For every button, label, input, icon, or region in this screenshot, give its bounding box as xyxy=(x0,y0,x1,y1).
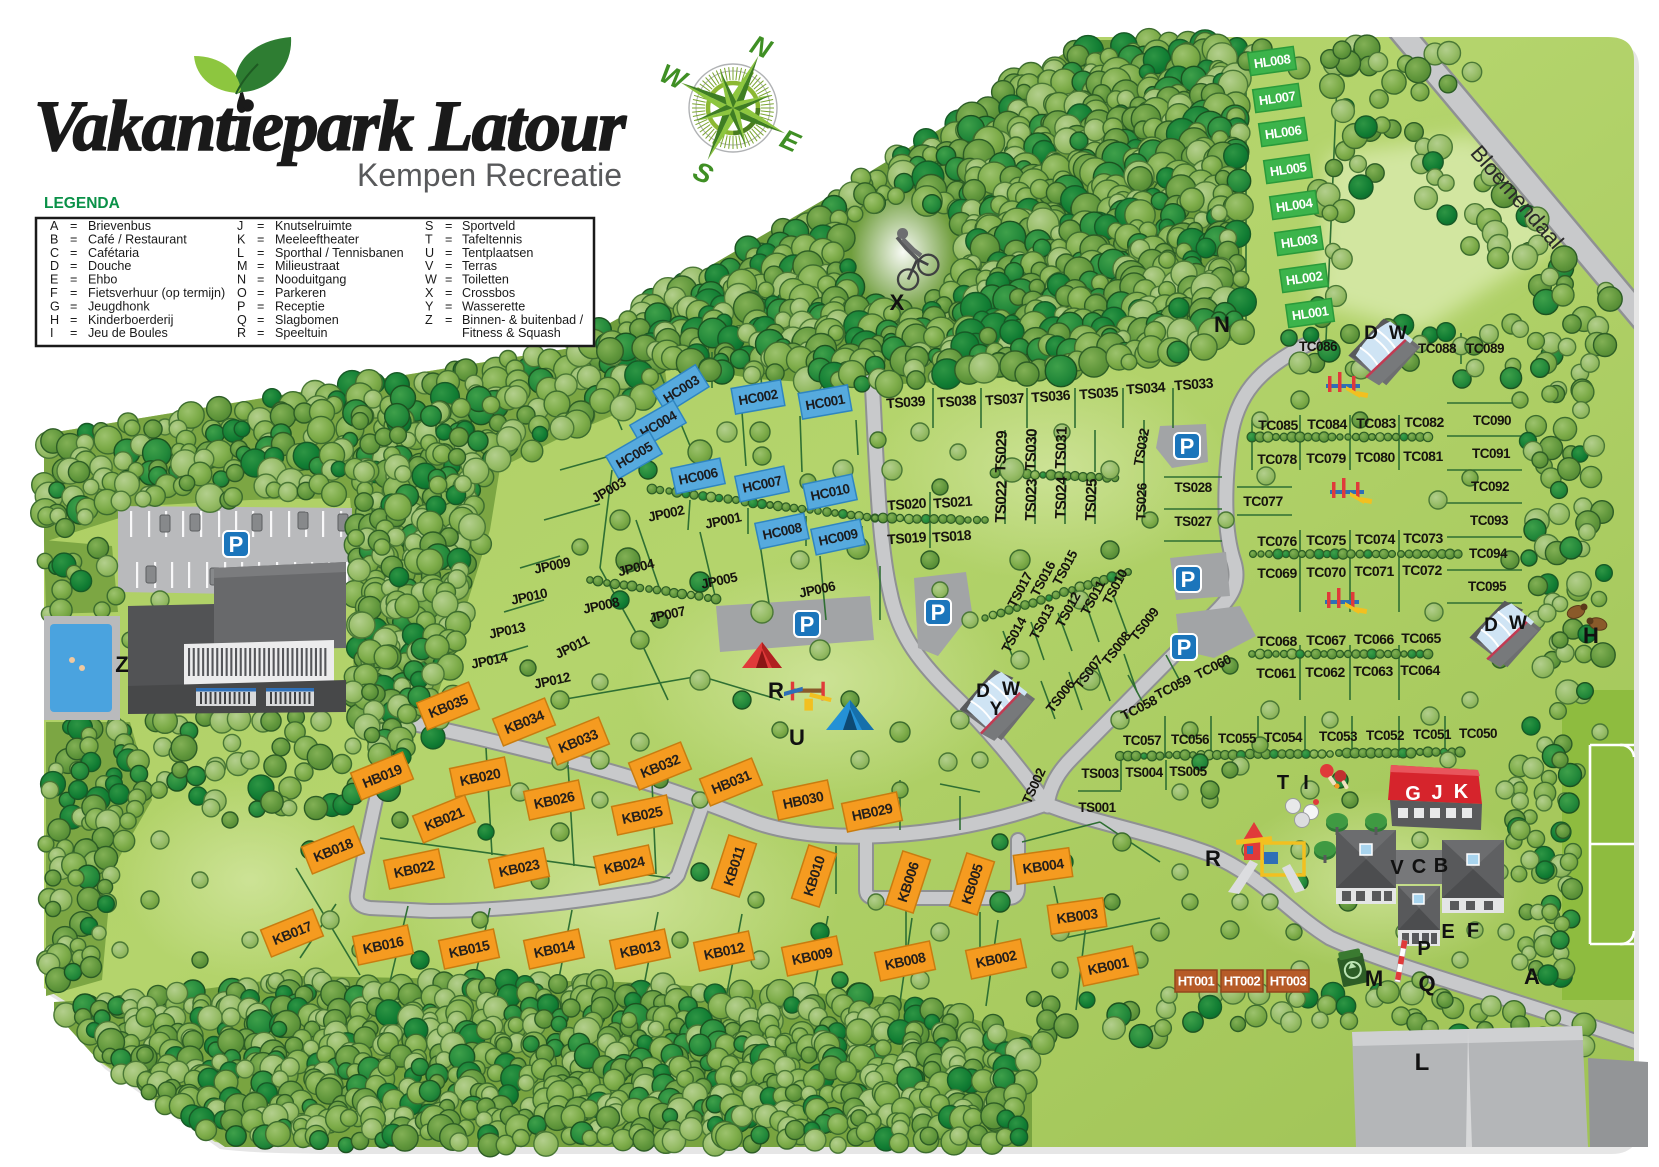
svg-text:TC052: TC052 xyxy=(1366,728,1404,743)
svg-text:TS035: TS035 xyxy=(1079,384,1119,403)
svg-text:Parkeren: Parkeren xyxy=(275,286,326,300)
svg-text:P: P xyxy=(1177,635,1192,660)
svg-text:=: = xyxy=(445,273,452,287)
svg-text:TC061: TC061 xyxy=(1256,665,1296,681)
svg-text:TS003: TS003 xyxy=(1081,766,1119,781)
svg-text:Speeltuin: Speeltuin xyxy=(275,326,328,340)
svg-text:TS039: TS039 xyxy=(886,393,926,412)
svg-text:TC063: TC063 xyxy=(1353,663,1393,679)
svg-text:=: = xyxy=(70,299,77,313)
svg-text:Tafeltennis: Tafeltennis xyxy=(462,232,522,246)
svg-text:Sporthal / Tennisbanen: Sporthal / Tennisbanen xyxy=(275,246,404,260)
svg-text:H: H xyxy=(50,313,59,327)
svg-text:TC056: TC056 xyxy=(1171,732,1210,747)
svg-text:LEGENDA: LEGENDA xyxy=(44,195,120,212)
svg-text:TS033: TS033 xyxy=(1174,375,1214,394)
svg-text:Brievenbus: Brievenbus xyxy=(88,219,151,233)
svg-text:Q: Q xyxy=(237,313,247,327)
svg-text:Toiletten: Toiletten xyxy=(462,273,509,287)
svg-text:=: = xyxy=(445,219,452,233)
svg-text:TC091: TC091 xyxy=(1472,446,1511,461)
svg-text:Sportveld: Sportveld xyxy=(462,219,515,233)
svg-text:=: = xyxy=(70,246,77,260)
svg-text:TC067: TC067 xyxy=(1306,632,1346,648)
svg-text:R: R xyxy=(237,326,246,340)
svg-text:TC092: TC092 xyxy=(1471,479,1509,494)
svg-text:M: M xyxy=(237,259,248,273)
svg-text:TC057: TC057 xyxy=(1123,733,1161,748)
svg-text:E: E xyxy=(50,273,58,287)
svg-text:P: P xyxy=(1180,434,1195,459)
svg-text:W: W xyxy=(1389,323,1407,344)
svg-text:Y: Y xyxy=(425,299,434,313)
svg-text:P: P xyxy=(800,612,815,637)
svg-text:TC072: TC072 xyxy=(1402,562,1442,578)
svg-text:TS001: TS001 xyxy=(1078,800,1116,815)
svg-text:D: D xyxy=(1484,615,1498,636)
svg-text:I: I xyxy=(50,326,54,340)
svg-text:N: N xyxy=(237,273,246,287)
svg-text:TS021: TS021 xyxy=(933,493,973,512)
svg-text:M: M xyxy=(1365,966,1383,991)
svg-text:TC074: TC074 xyxy=(1355,531,1395,547)
svg-text:TS036: TS036 xyxy=(1031,387,1071,406)
svg-text:=: = xyxy=(445,313,452,327)
svg-text:Terras: Terras xyxy=(462,259,497,273)
svg-text:=: = xyxy=(70,232,77,246)
svg-text:U: U xyxy=(425,246,434,260)
svg-text:=: = xyxy=(257,246,264,260)
svg-text:O: O xyxy=(237,286,247,300)
svg-text:Q: Q xyxy=(1418,971,1435,996)
svg-text:Douche: Douche xyxy=(88,259,131,273)
svg-text:D: D xyxy=(976,681,990,702)
svg-text:X: X xyxy=(425,286,434,300)
svg-text:=: = xyxy=(257,326,264,340)
svg-text:Fitness & Squash: Fitness & Squash xyxy=(462,326,561,340)
svg-text:TC069: TC069 xyxy=(1257,565,1297,581)
svg-text:TC094: TC094 xyxy=(1469,546,1508,561)
svg-text:B: B xyxy=(1434,855,1448,877)
svg-text:HT001: HT001 xyxy=(1178,974,1215,989)
svg-text:TS027: TS027 xyxy=(1174,514,1211,529)
svg-text:=: = xyxy=(257,259,264,273)
svg-text:C: C xyxy=(50,246,59,260)
svg-text:Nooduitgang: Nooduitgang xyxy=(275,273,346,287)
svg-text:I: I xyxy=(1303,772,1309,794)
svg-text:TS018: TS018 xyxy=(932,527,972,546)
svg-text:=: = xyxy=(445,286,452,300)
svg-text:X: X xyxy=(890,290,905,315)
svg-text:TS022: TS022 xyxy=(992,481,1010,523)
svg-text:TS031: TS031 xyxy=(1052,427,1070,469)
svg-text:TC051: TC051 xyxy=(1413,727,1452,742)
svg-text:Ehbo: Ehbo xyxy=(88,273,117,287)
svg-text:Z: Z xyxy=(425,313,433,327)
svg-text:J: J xyxy=(1431,782,1442,804)
svg-text:D: D xyxy=(50,259,59,273)
svg-text:Jeu de Boules: Jeu de Boules xyxy=(88,326,168,340)
svg-text:A: A xyxy=(50,219,59,233)
svg-text:P: P xyxy=(1417,938,1430,960)
svg-text:P: P xyxy=(229,532,244,557)
svg-text:TC062: TC062 xyxy=(1305,664,1345,680)
svg-text:=: = xyxy=(445,299,452,313)
svg-text:E: E xyxy=(1441,921,1454,943)
svg-text:TS028: TS028 xyxy=(1174,480,1212,495)
svg-text:TS005: TS005 xyxy=(1169,764,1207,779)
svg-text:Y: Y xyxy=(990,699,1003,720)
svg-text:TC053: TC053 xyxy=(1319,729,1358,744)
svg-text:=: = xyxy=(70,286,77,300)
svg-text:Wasserette: Wasserette xyxy=(462,299,525,313)
svg-text:Milieustraat: Milieustraat xyxy=(275,259,340,273)
svg-text:TS024: TS024 xyxy=(1052,476,1070,519)
svg-text:TS038: TS038 xyxy=(937,392,977,411)
svg-text:W: W xyxy=(425,273,437,287)
svg-text:P: P xyxy=(931,600,946,625)
svg-text:TC083: TC083 xyxy=(1356,415,1396,431)
svg-text:TS037: TS037 xyxy=(985,390,1025,409)
svg-text:=: = xyxy=(257,273,264,287)
svg-text:Vakantiepark Latour: Vakantiepark Latour xyxy=(34,86,627,166)
svg-text:W: W xyxy=(1002,679,1020,700)
svg-text:TC064: TC064 xyxy=(1400,662,1440,678)
svg-text:TC089: TC089 xyxy=(1466,341,1504,356)
svg-text:TC068: TC068 xyxy=(1257,633,1297,649)
svg-text:=: = xyxy=(445,259,452,273)
svg-text:=: = xyxy=(257,219,264,233)
svg-text:TC084: TC084 xyxy=(1307,416,1347,432)
svg-text:D: D xyxy=(1364,323,1378,344)
svg-text:Receptie: Receptie xyxy=(275,299,325,313)
svg-text:=: = xyxy=(257,232,264,246)
svg-text:T: T xyxy=(1277,772,1289,794)
svg-text:TC088: TC088 xyxy=(1418,341,1457,356)
svg-text:TC055: TC055 xyxy=(1218,731,1257,746)
svg-text:TC054: TC054 xyxy=(1264,730,1303,745)
svg-text:=: = xyxy=(257,286,264,300)
svg-text:TC081: TC081 xyxy=(1403,448,1443,464)
svg-text:Slagbomen: Slagbomen xyxy=(275,313,339,327)
svg-text:Crossbos: Crossbos xyxy=(462,286,515,300)
svg-text:V: V xyxy=(425,259,434,273)
svg-text:HT003: HT003 xyxy=(1270,974,1307,989)
svg-text:K: K xyxy=(1454,781,1469,803)
svg-text:F: F xyxy=(1467,920,1479,942)
svg-text:Tentplaatsen: Tentplaatsen xyxy=(462,246,533,260)
svg-text:Cafétaria: Cafétaria xyxy=(88,246,139,260)
svg-text:R: R xyxy=(768,678,784,703)
svg-text:=: = xyxy=(257,313,264,327)
svg-text:K: K xyxy=(237,232,246,246)
svg-text:TS025: TS025 xyxy=(1082,479,1100,521)
svg-text:U: U xyxy=(789,725,805,750)
svg-text:Jeugdhonk: Jeugdhonk xyxy=(88,299,150,313)
svg-text:H: H xyxy=(1583,623,1599,648)
svg-text:Café / Restaurant: Café / Restaurant xyxy=(88,232,187,246)
svg-text:Meeleeftheater: Meeleeftheater xyxy=(275,232,359,246)
svg-text:TC085: TC085 xyxy=(1258,417,1298,433)
svg-text:P: P xyxy=(237,299,245,313)
svg-text:T: T xyxy=(425,232,433,246)
svg-text:TC073: TC073 xyxy=(1403,530,1443,546)
svg-text:Fietsverhuur (op termijn): Fietsverhuur (op termijn) xyxy=(88,286,225,300)
svg-text:F: F xyxy=(50,286,58,300)
svg-text:B: B xyxy=(50,232,58,246)
svg-text:TC095: TC095 xyxy=(1468,579,1507,594)
svg-text:TC079: TC079 xyxy=(1306,450,1346,466)
svg-text:Binnen- & buitenbad /: Binnen- & buitenbad / xyxy=(462,313,584,327)
svg-text:C: C xyxy=(1412,856,1426,878)
svg-text:R: R xyxy=(1205,846,1221,871)
svg-text:TC066: TC066 xyxy=(1354,631,1394,647)
svg-text:=: = xyxy=(70,259,77,273)
svg-text:TS023: TS023 xyxy=(1022,479,1040,521)
svg-text:G: G xyxy=(50,299,60,313)
svg-text:=: = xyxy=(257,299,264,313)
svg-text:=: = xyxy=(70,326,77,340)
svg-text:=: = xyxy=(70,313,77,327)
svg-text:A: A xyxy=(1524,964,1540,989)
svg-text:=: = xyxy=(445,232,452,246)
svg-text:TC065: TC065 xyxy=(1401,630,1441,646)
svg-text:L: L xyxy=(237,246,244,260)
svg-text:TC078: TC078 xyxy=(1257,451,1297,467)
svg-text:TS029: TS029 xyxy=(992,431,1010,473)
svg-text:TS004: TS004 xyxy=(1125,765,1163,780)
svg-text:G: G xyxy=(1405,783,1421,805)
svg-text:TC086: TC086 xyxy=(1299,339,1338,354)
svg-text:L: L xyxy=(1415,1049,1430,1076)
svg-text:=: = xyxy=(70,273,77,287)
svg-text:TS020: TS020 xyxy=(887,495,927,514)
svg-text:Kempen Recreatie: Kempen Recreatie xyxy=(357,157,622,193)
svg-text:J: J xyxy=(237,219,243,233)
svg-text:Knutselruimte: Knutselruimte xyxy=(275,219,352,233)
svg-text:TC080: TC080 xyxy=(1355,449,1395,465)
svg-text:TC090: TC090 xyxy=(1473,413,1511,428)
svg-text:TC093: TC093 xyxy=(1470,513,1509,528)
svg-text:=: = xyxy=(70,219,77,233)
svg-text:Kinderboerderij: Kinderboerderij xyxy=(88,313,173,327)
svg-text:TC082: TC082 xyxy=(1404,414,1444,430)
svg-text:=: = xyxy=(445,246,452,260)
svg-text:TC050: TC050 xyxy=(1459,726,1497,741)
svg-text:TC071: TC071 xyxy=(1354,563,1394,579)
svg-text:TS034: TS034 xyxy=(1126,379,1166,398)
svg-text:N: N xyxy=(1214,312,1230,337)
svg-text:TS026: TS026 xyxy=(1133,482,1149,521)
svg-text:P: P xyxy=(1181,567,1196,592)
svg-text:TC076: TC076 xyxy=(1257,533,1297,549)
svg-text:W: W xyxy=(1509,613,1527,634)
svg-text:TS019: TS019 xyxy=(887,529,927,548)
svg-text:TC075: TC075 xyxy=(1306,532,1346,548)
svg-text:S: S xyxy=(425,219,433,233)
svg-text:HT002: HT002 xyxy=(1224,974,1261,989)
svg-text:V: V xyxy=(1390,857,1404,879)
svg-text:Z: Z xyxy=(115,652,128,677)
svg-text:TS030: TS030 xyxy=(1022,429,1040,471)
svg-text:TC077: TC077 xyxy=(1243,493,1283,509)
svg-text:TC070: TC070 xyxy=(1306,564,1346,580)
